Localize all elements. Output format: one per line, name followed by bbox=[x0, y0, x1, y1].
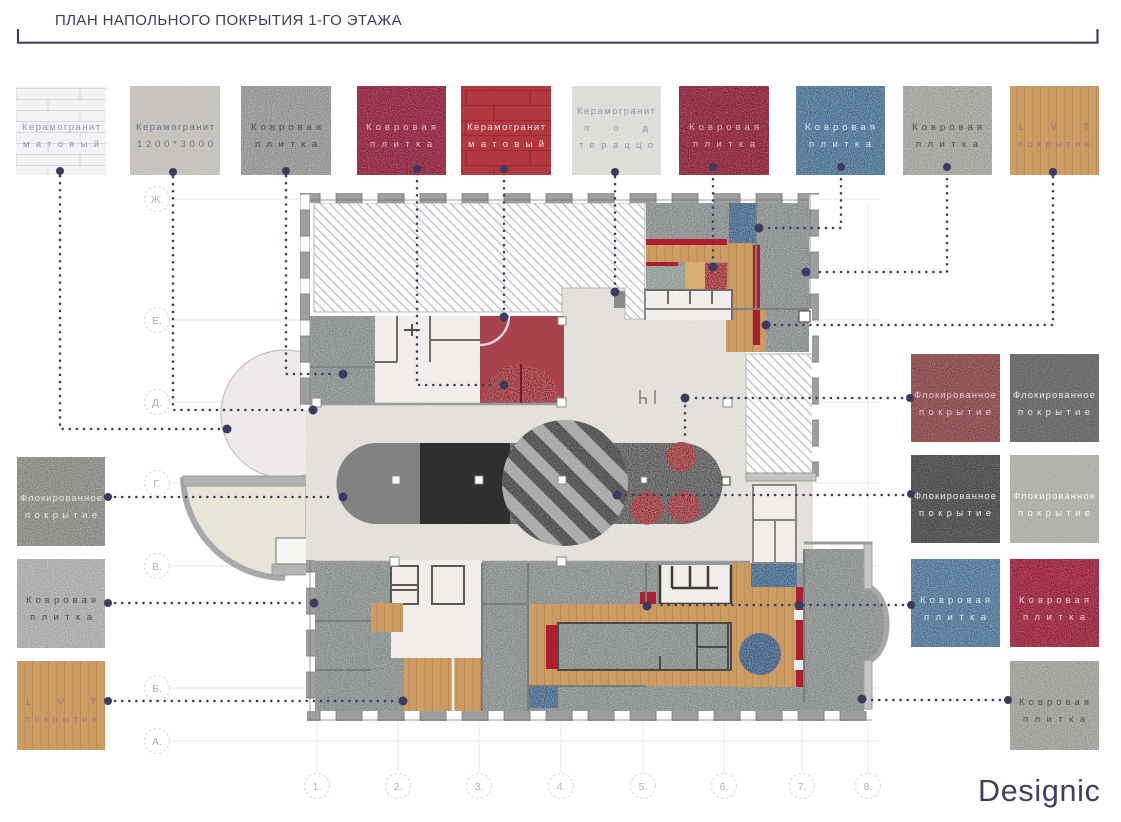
svg-text:1200*3000: 1200*3000 bbox=[137, 139, 213, 150]
svg-text:2.: 2. bbox=[394, 781, 403, 793]
svg-text:Г.: Г. bbox=[153, 478, 160, 490]
svg-text:6.: 6. bbox=[720, 781, 729, 793]
svg-text:Керамогранит: Керамогранит bbox=[22, 122, 101, 133]
svg-text:Флокированное: Флокированное bbox=[1013, 491, 1095, 502]
svg-text:Флокированное: Флокированное bbox=[914, 390, 996, 401]
svg-text:5.: 5. bbox=[639, 781, 648, 793]
svg-text:Б.: Б. bbox=[152, 683, 162, 695]
svg-text:8.: 8. bbox=[864, 781, 873, 793]
svg-text:А.: А. bbox=[152, 736, 162, 748]
svg-text:В.: В. bbox=[152, 561, 162, 573]
svg-text:Керамогранит: Керамогранит bbox=[136, 122, 215, 133]
svg-text:4.: 4. bbox=[557, 781, 566, 793]
svg-text:Designic: Designic bbox=[978, 774, 1101, 808]
svg-text:Е.: Е. bbox=[152, 315, 162, 327]
svg-text:Керамогранит: Керамогранит bbox=[467, 122, 546, 133]
svg-text:1.: 1. bbox=[313, 781, 322, 793]
svg-text:7.: 7. bbox=[798, 781, 807, 793]
svg-text:Флокированное: Флокированное bbox=[914, 491, 996, 502]
svg-text:Флокированное: Флокированное bbox=[1013, 390, 1095, 401]
svg-text:Флокированное: Флокированное bbox=[20, 493, 102, 504]
svg-text:Ж.: Ж. bbox=[151, 194, 164, 206]
svg-text:Керамогранит: Керамогранит bbox=[577, 106, 656, 117]
svg-text:3.: 3. bbox=[475, 781, 484, 793]
svg-text:Д.: Д. bbox=[152, 397, 162, 409]
svg-text:ПЛАН НАПОЛЬНОГО ПОКРЫТИЯ 1-ГО: ПЛАН НАПОЛЬНОГО ПОКРЫТИЯ 1-ГО ЭТАЖА bbox=[55, 12, 402, 29]
